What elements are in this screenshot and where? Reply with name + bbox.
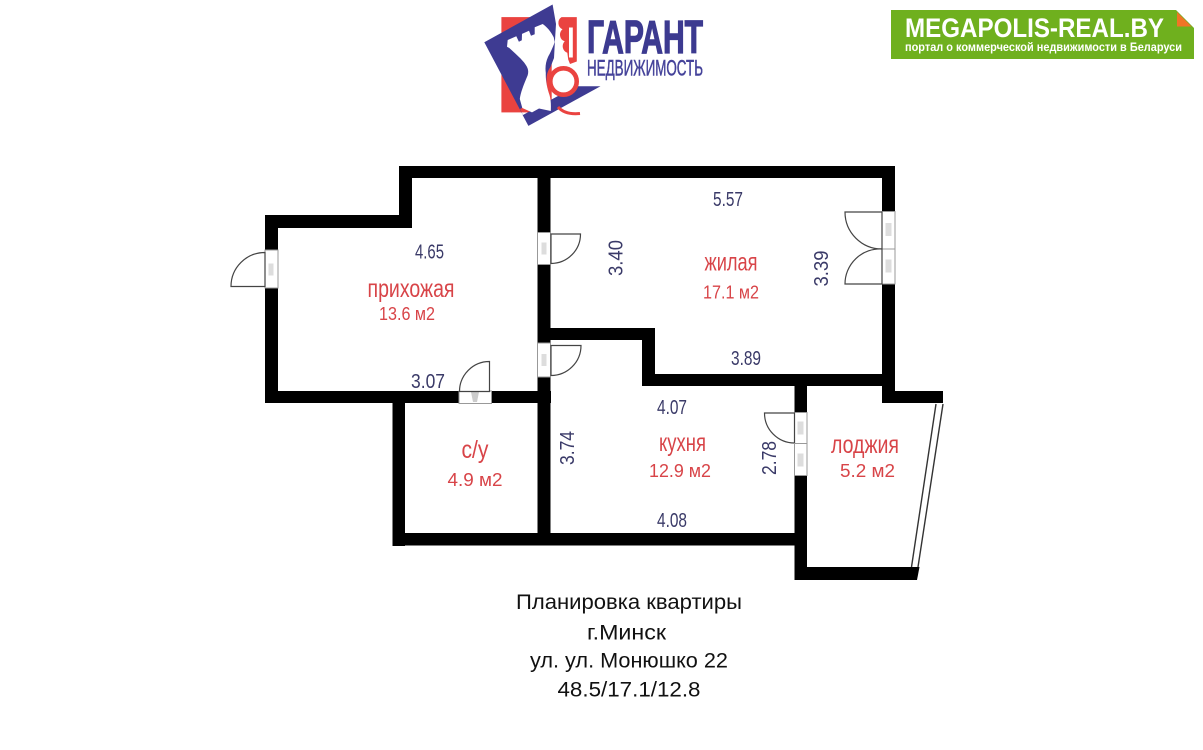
- svg-text:3.39: 3.39: [811, 251, 833, 287]
- svg-text:4.65: 4.65: [415, 242, 444, 264]
- svg-text:12.9 м2: 12.9 м2: [649, 461, 711, 481]
- svg-text:с/у: с/у: [462, 436, 489, 464]
- svg-text:17.1 м2: 17.1 м2: [703, 283, 759, 303]
- svg-text:4.08: 4.08: [657, 510, 687, 532]
- svg-text:3.40: 3.40: [606, 240, 628, 276]
- svg-text:2.78: 2.78: [759, 441, 781, 475]
- svg-text:НЕДВИЖИМОСТЬ: НЕДВИЖИМОСТЬ: [587, 56, 703, 81]
- svg-text:портал о коммерческой недвижим: портал о коммерческой недвижимости в Бел…: [905, 42, 1182, 54]
- svg-text:лоджия: лоджия: [831, 431, 899, 459]
- svg-text:5.57: 5.57: [713, 189, 743, 211]
- svg-text:г.Минск: г.Минск: [587, 622, 667, 645]
- svg-text:4.9 м2: 4.9 м2: [448, 470, 503, 490]
- svg-text:3.89: 3.89: [731, 348, 761, 370]
- svg-text:ул. ул. Монюшко 22: ул. ул. Монюшко 22: [530, 650, 728, 673]
- svg-text:48.5/17.1/12.8: 48.5/17.1/12.8: [558, 679, 701, 702]
- svg-text:жилая: жилая: [705, 249, 758, 277]
- svg-text:прихожая: прихожая: [368, 275, 455, 303]
- svg-text:13.6 м2: 13.6 м2: [379, 304, 435, 324]
- svg-text:Планировка квартиры: Планировка квартиры: [516, 591, 742, 614]
- svg-text:5.2 м2: 5.2 м2: [840, 461, 895, 481]
- svg-text:4.07: 4.07: [657, 397, 687, 419]
- svg-text:MEGAPOLIS-REAL.BY: MEGAPOLIS-REAL.BY: [905, 13, 1164, 43]
- svg-text:кухня: кухня: [659, 429, 706, 457]
- svg-text:3.74: 3.74: [557, 431, 579, 465]
- svg-text:3.07: 3.07: [411, 371, 445, 393]
